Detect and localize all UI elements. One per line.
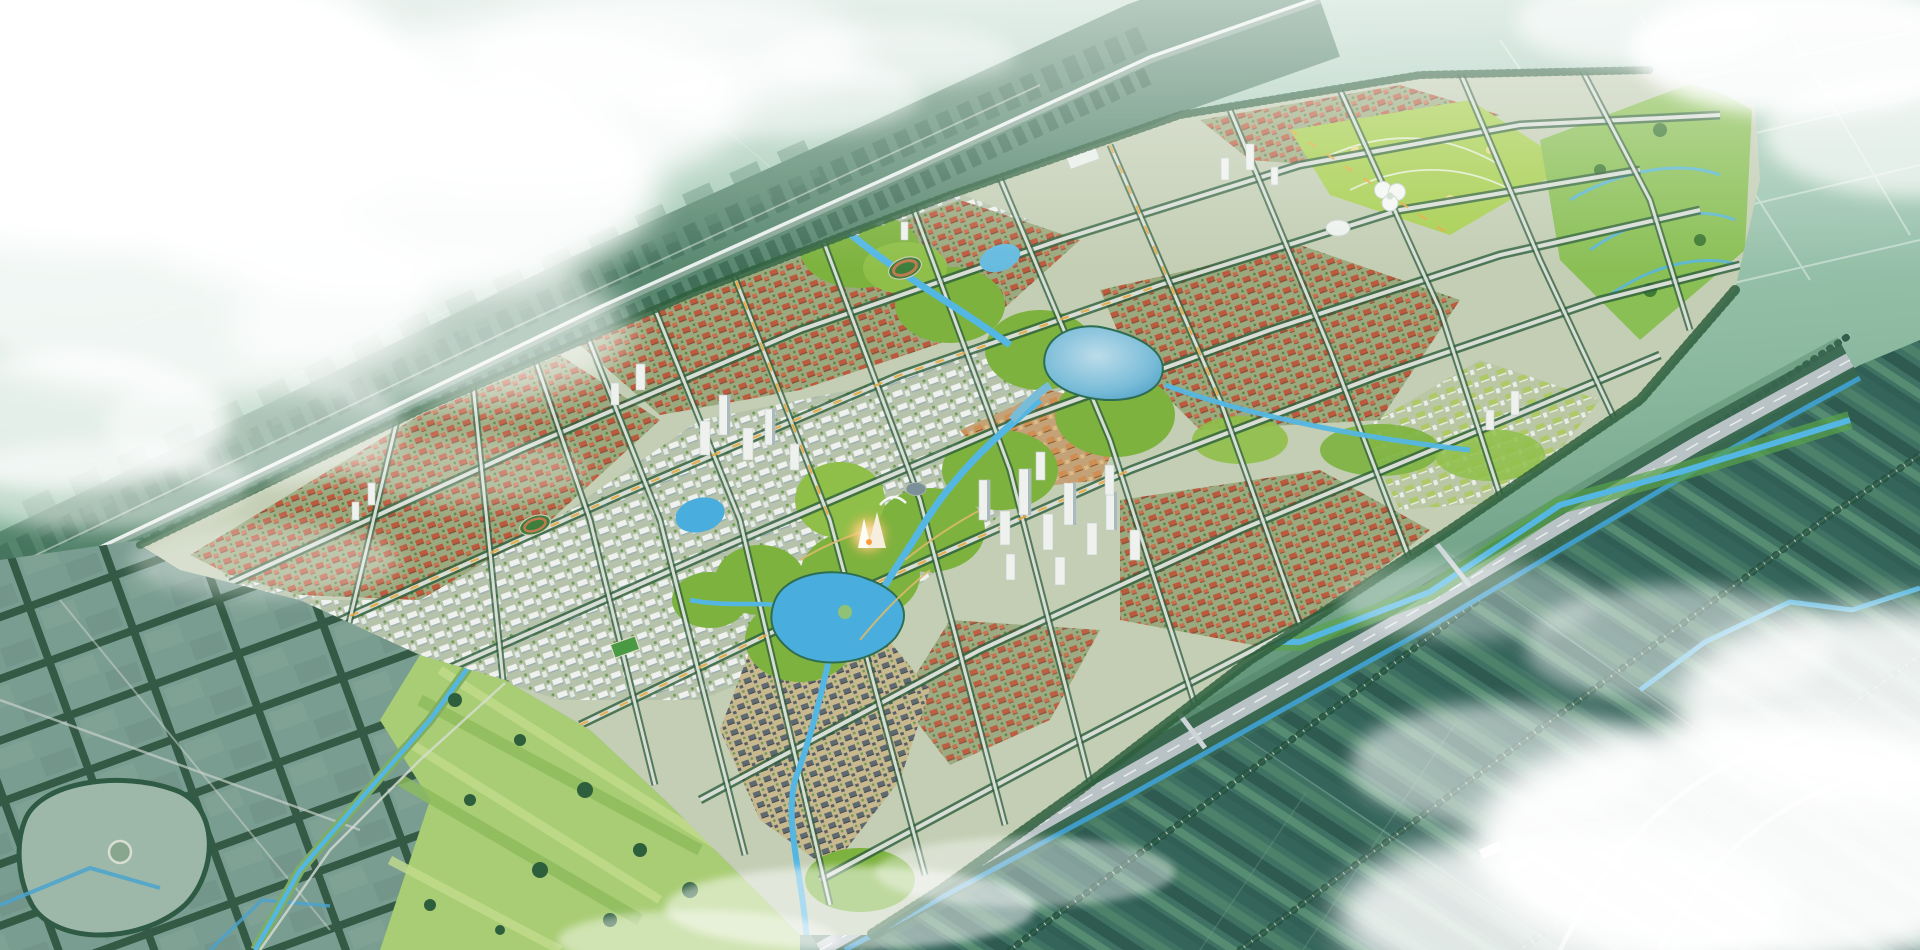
dome-building	[906, 483, 926, 496]
aerial-city-rendering	[0, 0, 1920, 950]
scene-canvas	[0, 0, 1920, 950]
